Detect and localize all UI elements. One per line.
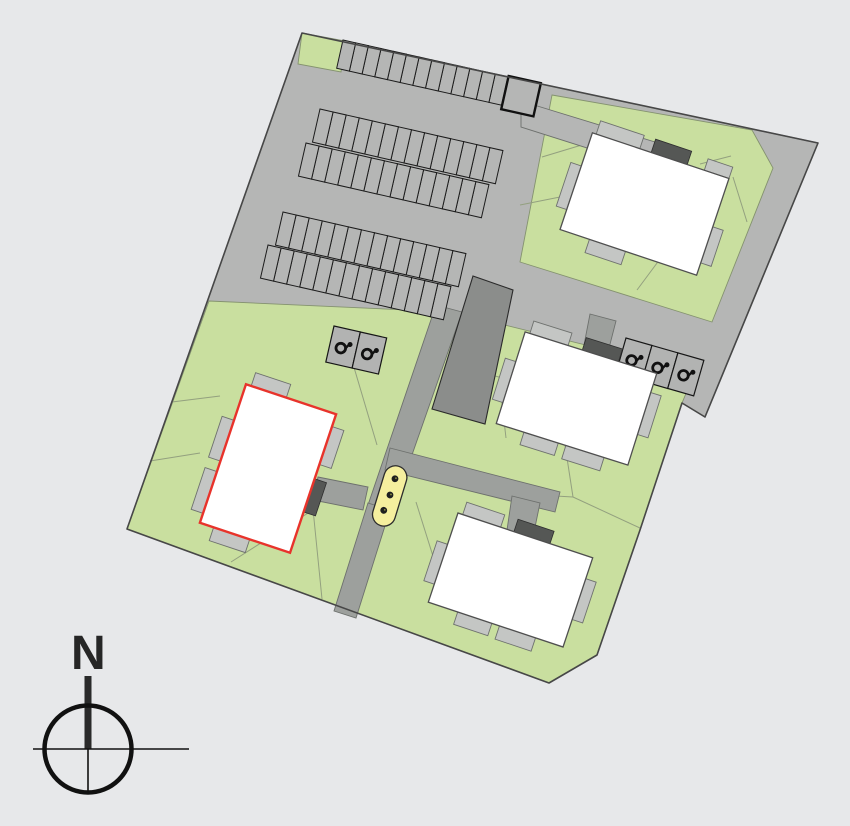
compass-needle-north xyxy=(85,676,92,749)
site-plan-canvas: N xyxy=(0,0,850,826)
compass-rose: N xyxy=(33,627,189,794)
compass-north-label: N xyxy=(71,627,106,680)
